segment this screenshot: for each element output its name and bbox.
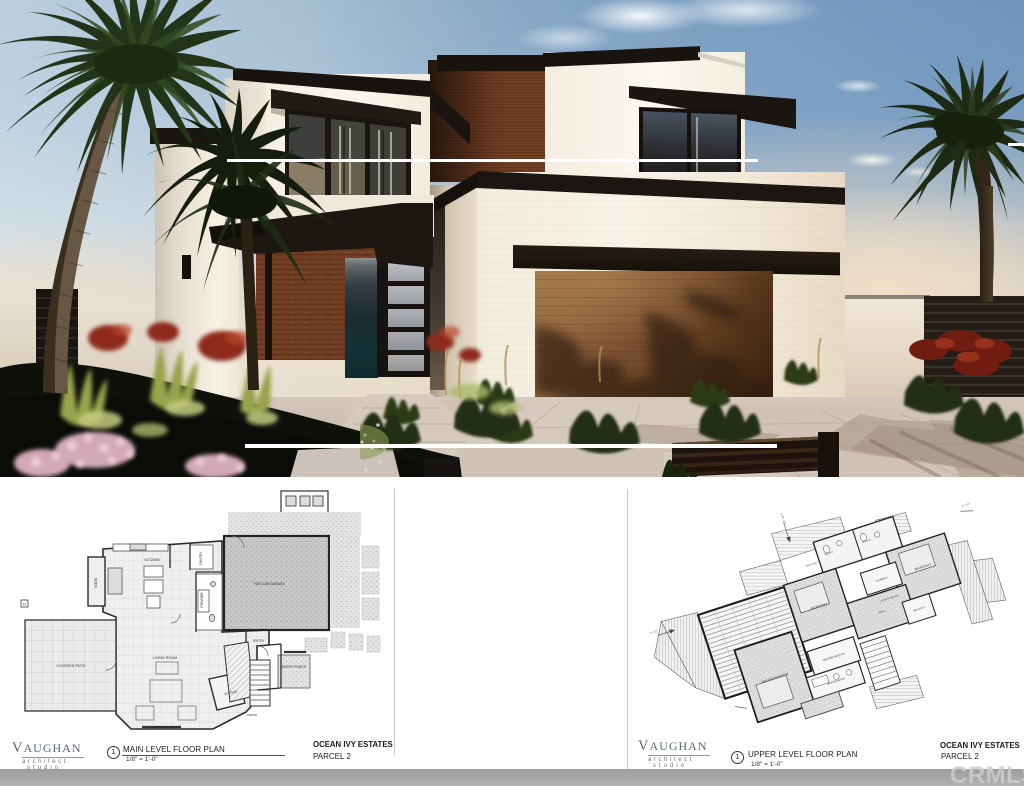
svg-text:POWDER: POWDER — [200, 592, 204, 608]
svg-text:ENTRY PORCH: ENTRY PORCH — [282, 665, 307, 669]
svg-text:H: H — [23, 602, 26, 607]
svg-text:LIVING ROOM: LIVING ROOM — [153, 656, 177, 660]
svg-text:COVERED PATIO: COVERED PATIO — [56, 664, 85, 668]
svg-text:NOOK: NOOK — [94, 577, 98, 588]
svg-text:1 1/2" / 12": 1 1/2" / 12" — [780, 513, 787, 525]
svg-text:ENTRY: ENTRY — [253, 639, 265, 643]
svg-text:PANTRY: PANTRY — [199, 551, 203, 565]
svg-text:KITCHEN: KITCHEN — [145, 558, 160, 562]
svg-text:7" / 12": 7" / 12" — [650, 630, 659, 635]
svg-text:2" / 12": 2" / 12" — [962, 503, 971, 508]
svg-text:TWO CAR GARAGE: TWO CAR GARAGE — [253, 582, 285, 586]
svg-text:ABOVE: ABOVE — [247, 713, 257, 717]
svg-text:WALK-IN 2: WALK-IN 2 — [806, 561, 819, 568]
